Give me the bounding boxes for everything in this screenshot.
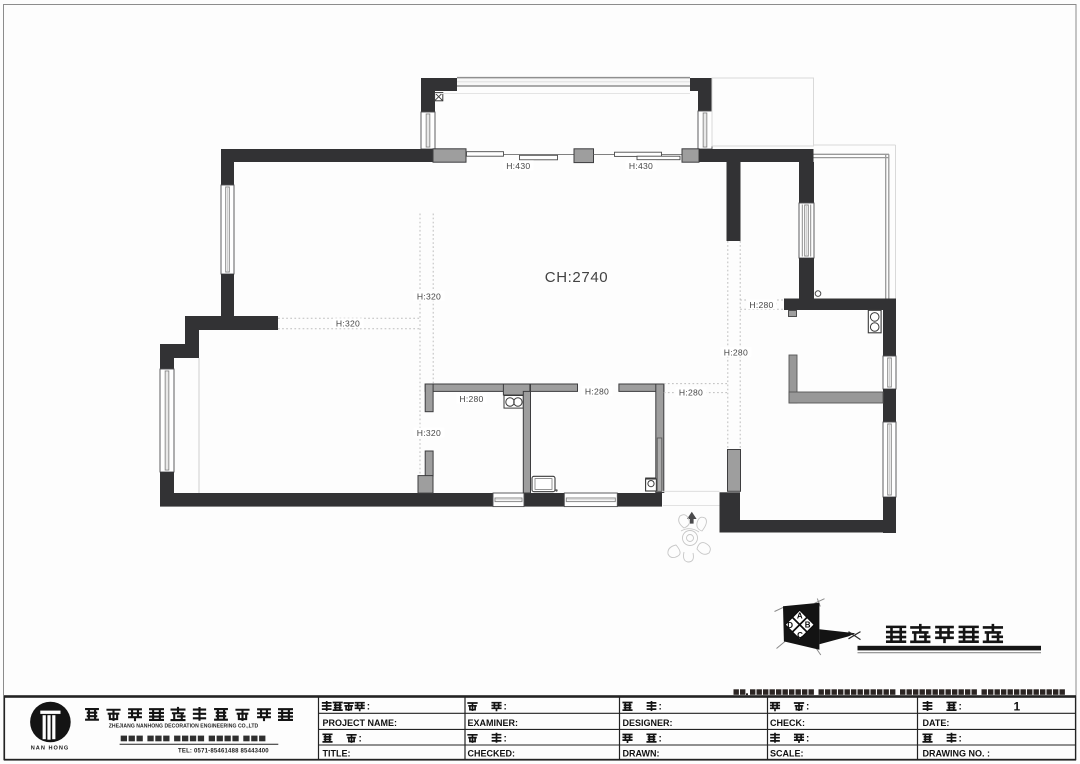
svg-text:DESIGNER:: DESIGNER: — [623, 718, 673, 728]
svg-text:D: D — [787, 621, 793, 630]
svg-text::: : — [959, 702, 962, 713]
svg-text:CHECKED:: CHECKED: — [468, 749, 516, 759]
svg-text:EXAMINER:: EXAMINER: — [468, 718, 519, 728]
svg-text:NAN HONG: NAN HONG — [31, 746, 69, 752]
svg-text:A: A — [797, 612, 803, 621]
svg-text:H:280: H:280 — [679, 387, 703, 397]
svg-text:TITLE:: TITLE: — [323, 749, 351, 759]
svg-text:PROJECT NAME:: PROJECT NAME: — [323, 718, 398, 728]
svg-text:C: C — [797, 631, 803, 640]
svg-text::: : — [659, 702, 662, 713]
svg-text::: : — [504, 702, 507, 713]
svg-text::: : — [659, 734, 662, 745]
svg-text::: : — [359, 734, 362, 745]
svg-text:H:320: H:320 — [417, 428, 441, 438]
svg-text::: : — [504, 734, 507, 745]
svg-text:H:430: H:430 — [506, 161, 530, 171]
svg-text:H:320: H:320 — [417, 291, 441, 301]
svg-text:B: B — [805, 621, 811, 630]
svg-text::: : — [367, 702, 370, 713]
svg-text:DATE:: DATE: — [923, 718, 950, 728]
svg-text:SCALE:: SCALE: — [770, 749, 804, 759]
svg-text:H:280: H:280 — [724, 347, 748, 357]
svg-text::: : — [806, 734, 809, 745]
svg-text:H:280: H:280 — [459, 394, 483, 404]
svg-text:DRAWN:: DRAWN: — [623, 749, 660, 759]
svg-text:H:320: H:320 — [336, 319, 360, 329]
svg-text:H:430: H:430 — [629, 161, 653, 171]
svg-text::: : — [959, 734, 962, 745]
svg-text:H:280: H:280 — [585, 386, 609, 396]
svg-text:DRAWING NO. :: DRAWING NO. : — [923, 749, 991, 759]
svg-text:TEL: 0571-85461488 85443400: TEL: 0571-85461488 85443400 — [178, 749, 269, 755]
svg-text::: : — [806, 702, 809, 713]
svg-text:H:280: H:280 — [749, 300, 773, 310]
svg-text:CHECK:: CHECK: — [770, 718, 805, 728]
svg-text:1: 1 — [1014, 699, 1021, 713]
svg-text:ZHEJIANG NANHONG DECORATION: ZHEJIANG NANHONG DECORATION ENGINEERING … — [109, 724, 259, 730]
svg-text:CH:2740: CH:2740 — [545, 269, 608, 286]
